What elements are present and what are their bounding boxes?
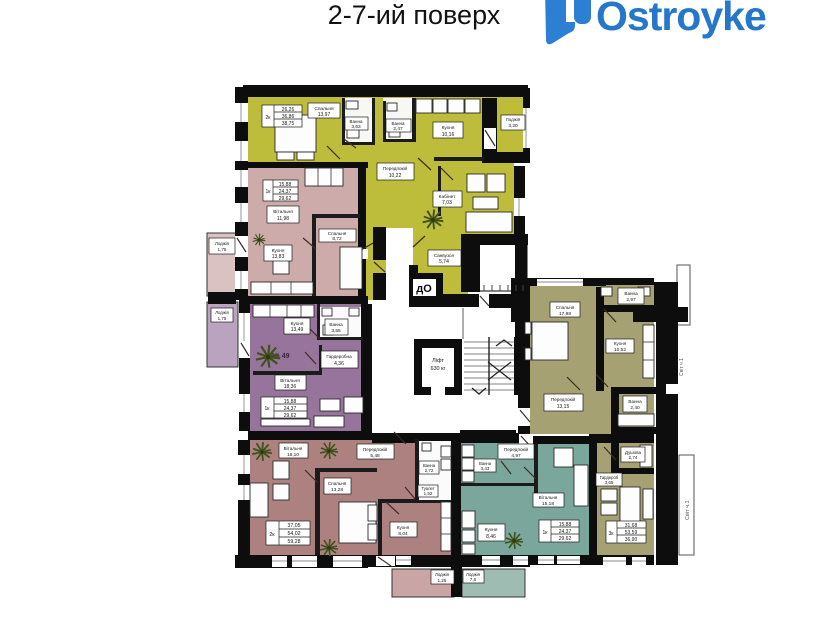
svg-text:13,15: 13,15 [557, 404, 570, 410]
svg-text:11,98: 11,98 [277, 216, 289, 222]
svg-text:Ванна: Ванна [350, 119, 363, 124]
svg-text:7,03: 7,03 [442, 200, 452, 206]
svg-text:8,46: 8,46 [486, 534, 496, 540]
svg-text:2-7-ий поверх: 2-7-ий поверх [328, 0, 501, 30]
svg-text:38,75: 38,75 [282, 121, 295, 127]
svg-text:Лоджія: Лоджія [435, 572, 450, 577]
svg-text:1к: 1к [543, 530, 549, 536]
svg-text:4,97: 4,97 [511, 453, 521, 459]
svg-text:1,75: 1,75 [218, 316, 227, 321]
svg-text:дО: дО [416, 283, 432, 295]
svg-text:15,18: 15,18 [542, 501, 554, 507]
svg-text:Ванна: Ванна [329, 322, 343, 327]
svg-text:Передпокій: Передпокій [551, 396, 576, 402]
svg-text:26,26: 26,26 [282, 107, 295, 113]
svg-text:2,74: 2,74 [629, 455, 638, 460]
svg-text:3,43: 3,43 [481, 466, 490, 471]
svg-text:13,49: 13,49 [291, 327, 304, 333]
svg-text:Ванна: Ванна [628, 399, 642, 404]
svg-text:3к: 3к [609, 531, 615, 537]
svg-text:4,36: 4,36 [334, 361, 344, 367]
svg-text:Світ ч.1: Світ ч.1 [679, 358, 685, 376]
svg-text:Ванна: Ванна [624, 291, 638, 296]
svg-text:36,86: 36,86 [282, 114, 295, 120]
svg-text:15,88: 15,88 [279, 182, 292, 188]
svg-text:59,28: 59,28 [288, 539, 301, 545]
svg-text:15,88: 15,88 [284, 399, 297, 405]
svg-text:5,48: 5,48 [370, 453, 380, 459]
svg-text:10,16: 10,16 [442, 132, 455, 138]
svg-text:29,62: 29,62 [559, 536, 572, 542]
svg-text:Вітальня: Вітальня [539, 495, 558, 500]
svg-text:1,25: 1,25 [438, 578, 447, 583]
svg-text:24,37: 24,37 [559, 529, 572, 535]
svg-text:24,37: 24,37 [284, 406, 297, 412]
svg-text:Гардеробна: Гардеробна [326, 354, 352, 359]
svg-text:Передпокій: Передпокій [363, 446, 388, 452]
svg-text:37,05: 37,05 [288, 523, 301, 529]
svg-text:630 кг: 630 кг [430, 366, 445, 372]
svg-text:2к: 2к [269, 532, 275, 538]
svg-text:15,88: 15,88 [559, 522, 572, 528]
svg-text:Світ ч.1: Світ ч.1 [685, 500, 691, 520]
svg-text:3,63: 3,63 [351, 124, 361, 130]
svg-text:5,74: 5,74 [439, 259, 449, 265]
svg-text:2к: 2к [266, 115, 272, 121]
svg-text:1к: 1к [266, 189, 272, 195]
svg-text:1,52: 1,52 [424, 491, 433, 496]
svg-text:1к: 1к [265, 406, 271, 412]
svg-text:Ванна: Ванна [392, 121, 405, 126]
svg-text:18,36: 18,36 [284, 384, 297, 390]
svg-text:3,55: 3,55 [331, 328, 341, 334]
svg-text:10,22: 10,22 [389, 173, 402, 179]
svg-text:Кухня: Кухня [442, 125, 455, 131]
svg-text:8,04: 8,04 [398, 531, 408, 537]
svg-text:Вітальня: Вітальня [273, 209, 293, 215]
svg-text:1,75: 1,75 [218, 247, 227, 252]
svg-text:24,37: 24,37 [279, 189, 292, 195]
svg-text:Лоджія: Лоджія [215, 241, 230, 246]
svg-text:Лоджія: Лоджія [506, 117, 521, 122]
svg-text:Кухня: Кухня [485, 527, 498, 533]
svg-text:2,47: 2,47 [393, 126, 403, 132]
svg-text:13,97: 13,97 [318, 112, 331, 118]
svg-text:Спальня: Спальня [328, 481, 347, 486]
svg-text:36,90: 36,90 [625, 537, 638, 543]
svg-text:18,10: 18,10 [287, 452, 299, 458]
svg-text:Ostroyke: Ostroyke [596, 0, 766, 39]
svg-text:31,68: 31,68 [625, 523, 638, 529]
svg-text:Кухня: Кухня [397, 525, 410, 530]
svg-text:3,20: 3,20 [508, 123, 518, 129]
svg-text:17,98: 17,98 [559, 311, 571, 317]
svg-text:8,72: 8,72 [332, 236, 342, 242]
svg-text:Спальня: Спальня [328, 231, 347, 236]
svg-text:7,6: 7,6 [470, 577, 477, 582]
svg-text:3,65: 3,65 [605, 480, 614, 485]
svg-text:10,52: 10,52 [614, 347, 626, 353]
svg-text:29,62: 29,62 [284, 413, 297, 419]
svg-text:13,28: 13,28 [331, 487, 343, 493]
svg-text:Вітальня: Вітальня [284, 446, 303, 451]
svg-text:2,97: 2,97 [626, 297, 636, 303]
svg-text:Передпокій: Передпокій [383, 165, 408, 171]
svg-text:29,62: 29,62 [279, 196, 292, 202]
svg-text:2,72: 2,72 [425, 468, 434, 473]
svg-text:Кухня: Кухня [614, 341, 627, 346]
svg-text:13,83: 13,83 [272, 254, 285, 260]
svg-text:Санвузол: Санвузол [434, 253, 455, 258]
svg-text:Спальня: Спальня [556, 305, 575, 310]
svg-text:53,59: 53,59 [625, 530, 638, 536]
svg-text:54,02: 54,02 [288, 531, 301, 537]
svg-text:2,40: 2,40 [630, 405, 640, 411]
svg-text:Передпокій: Передпокій [504, 446, 529, 452]
svg-text:Ліфт: Ліфт [432, 358, 444, 364]
svg-text:Лоджія: Лоджія [215, 310, 228, 315]
